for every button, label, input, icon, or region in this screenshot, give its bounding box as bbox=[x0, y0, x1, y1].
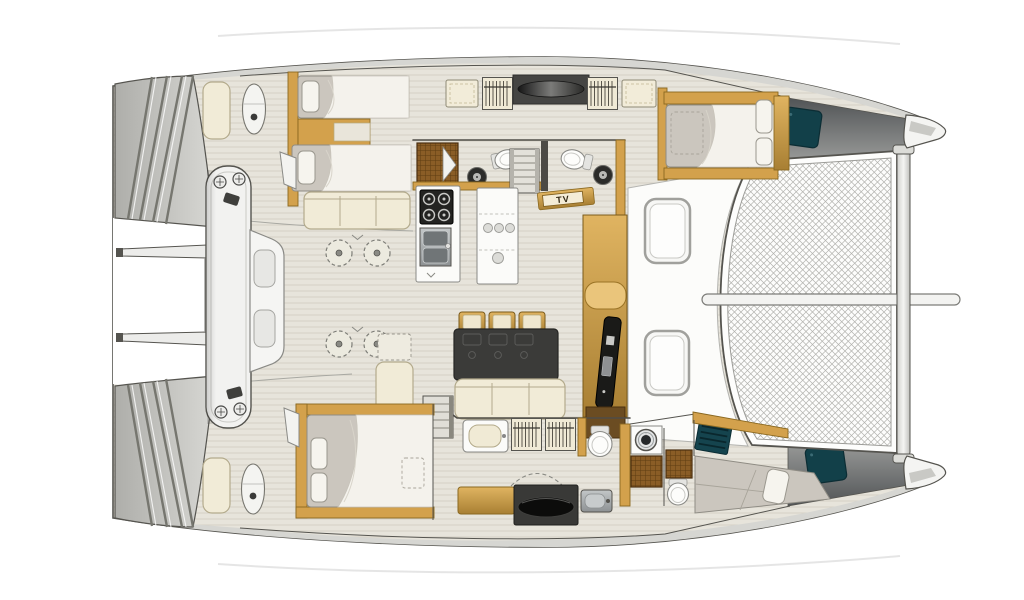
partition-wood bbox=[620, 424, 630, 506]
bar-stool bbox=[326, 331, 352, 357]
bulkhead-shelf bbox=[585, 282, 626, 309]
shower-grate bbox=[631, 456, 662, 487]
cabinet-cream-1 bbox=[446, 80, 478, 107]
partition bbox=[541, 141, 548, 191]
stowage-shelf bbox=[513, 75, 589, 104]
pillow bbox=[756, 100, 772, 133]
cabinet-cream-2 bbox=[622, 80, 656, 107]
vanity-console-dark bbox=[514, 485, 578, 525]
bed-trim bbox=[296, 404, 434, 415]
pillow bbox=[311, 473, 327, 502]
washing-machine bbox=[631, 426, 662, 454]
island-counter bbox=[477, 188, 518, 284]
owner-cabin-forward-port bbox=[658, 88, 789, 180]
cabin-settee bbox=[304, 192, 410, 229]
headboard bbox=[774, 96, 789, 170]
hanging-locker bbox=[546, 419, 576, 451]
wood-bench bbox=[458, 487, 515, 514]
deck-shower-pod-starboard bbox=[242, 464, 265, 514]
salon-settee bbox=[455, 379, 565, 419]
stern-bench-starboard bbox=[203, 458, 230, 513]
hanging-locker bbox=[483, 78, 513, 110]
floor-plan-canvas: TV bbox=[0, 0, 1024, 600]
stern-gap bbox=[113, 213, 213, 389]
pillow bbox=[311, 438, 327, 469]
bar-stool bbox=[364, 240, 390, 266]
bar-stool bbox=[326, 240, 352, 266]
bow-tip-starboard bbox=[904, 456, 946, 489]
galley-double-sink bbox=[420, 228, 451, 266]
vanity-basin bbox=[463, 420, 508, 452]
deck-hatch-forward-2 bbox=[645, 331, 689, 395]
double-bed bbox=[307, 415, 433, 507]
davit-arm-tip bbox=[116, 333, 123, 342]
partition-wood bbox=[616, 140, 625, 216]
shower-grate bbox=[666, 450, 692, 478]
wardrobe-row bbox=[446, 75, 656, 110]
catamaran-deck-plan: TV bbox=[0, 0, 1024, 600]
toilet bbox=[588, 426, 612, 457]
galley-stove bbox=[420, 190, 453, 224]
small-sink bbox=[581, 490, 612, 512]
stern-bench-port bbox=[203, 82, 230, 139]
pillow bbox=[756, 138, 772, 165]
hanging-locker bbox=[512, 419, 542, 451]
deck-hatch-forward-1 bbox=[645, 199, 690, 263]
bed-trim bbox=[296, 507, 434, 518]
washbasin-round bbox=[594, 166, 613, 185]
deck-shower-pod-port bbox=[243, 84, 266, 134]
toilet bbox=[668, 479, 689, 505]
pillow bbox=[302, 81, 319, 112]
aft-double-cabin-starboard bbox=[284, 404, 434, 520]
pillow bbox=[298, 151, 315, 184]
tv-label: TV bbox=[556, 194, 570, 205]
davit-arm-tip bbox=[116, 248, 123, 257]
companionway-stairs-port bbox=[510, 149, 539, 193]
hanging-locker bbox=[588, 78, 618, 110]
chaise-seat bbox=[376, 334, 413, 413]
double-bed bbox=[666, 100, 774, 167]
twin-bed-2 bbox=[292, 145, 411, 191]
bed-trim bbox=[664, 168, 778, 179]
twin-bed-1 bbox=[298, 76, 409, 118]
bow-tip-port bbox=[904, 115, 946, 148]
dining-table bbox=[454, 329, 558, 380]
partition-wood bbox=[578, 418, 586, 456]
bowsprit-seam bbox=[702, 294, 960, 305]
